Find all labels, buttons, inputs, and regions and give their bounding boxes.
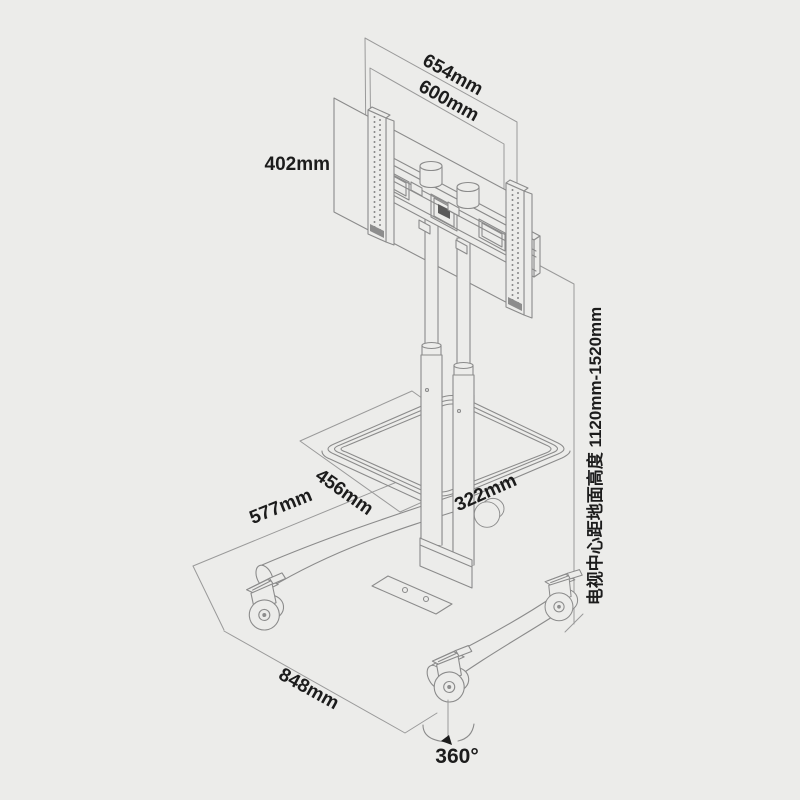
dim-577-label: 577mm — [247, 485, 316, 529]
dim-456-label: 456mm — [311, 465, 377, 520]
caster-swivel-indicator — [423, 700, 474, 745]
locking-knob-left — [420, 162, 442, 188]
support-column-right-lower — [453, 395, 474, 565]
caster-front-left — [245, 573, 291, 632]
diagram-canvas: 654mm 600mm 402mm 577mm 456mm 322mm 848m… — [0, 0, 800, 800]
bracket-rail-left — [368, 107, 394, 245]
support-column-left-lower — [421, 389, 442, 546]
dim-848-line — [224, 631, 437, 733]
swivel-arrowhead-icon — [441, 735, 452, 745]
base-foot-plate — [372, 576, 452, 614]
swivel-arrow-right-arc — [458, 724, 474, 741]
bracket-rail-right — [506, 180, 532, 318]
dim-848-label: 848mm — [275, 664, 342, 714]
dim-height-range-label: 电视中心距地面高度 1120mm-1520mm — [585, 307, 605, 606]
caster-rear-right — [545, 570, 582, 621]
dim-402-label: 402mm — [265, 154, 331, 175]
product-dimension-diagram: 654mm 600mm 402mm 577mm 456mm 322mm 848m… — [0, 0, 800, 800]
locking-knob-right — [457, 183, 479, 209]
dim-360-label: 360° — [435, 745, 478, 768]
